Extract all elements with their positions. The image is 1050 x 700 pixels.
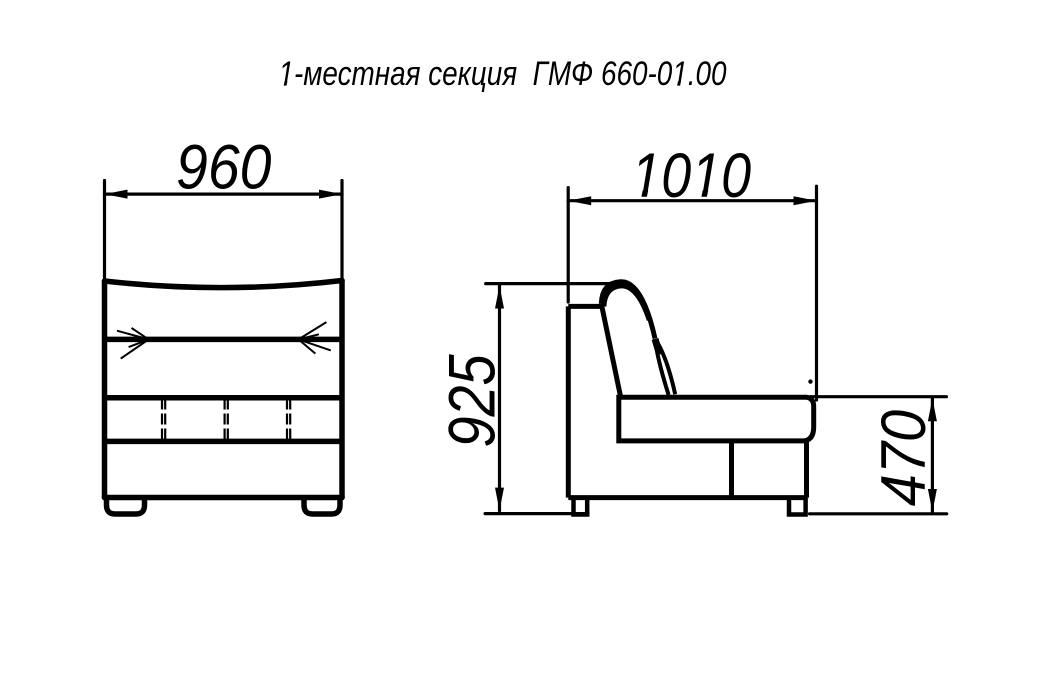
svg-text:1010: 1010 [631,141,751,211]
svg-text:925: 925 [435,353,508,447]
svg-text:1-местная секция ГМФ 660-01.0: 1-местная секция ГМФ 660-01.00 [279,55,727,93]
svg-text:470: 470 [868,409,939,506]
svg-text:960: 960 [176,132,271,202]
